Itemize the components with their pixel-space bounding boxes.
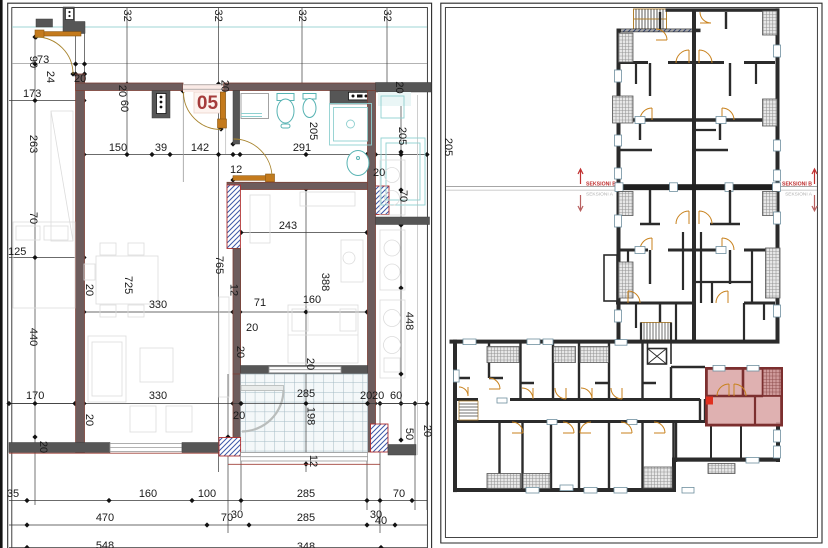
svg-text:20: 20 [372,390,384,402]
svg-text:20: 20 [421,425,433,437]
svg-text:70: 70 [397,190,409,202]
svg-text:20: 20 [219,80,231,92]
svg-text:12: 12 [230,164,242,176]
svg-text:40: 40 [375,515,387,527]
svg-text:20: 20 [116,85,128,97]
svg-text:765: 765 [213,256,225,274]
svg-text:20: 20 [233,410,245,422]
svg-text:30: 30 [231,509,243,521]
svg-text:173: 173 [23,88,41,100]
svg-text:125: 125 [8,246,26,258]
svg-text:348: 348 [297,541,315,548]
svg-text:160: 160 [303,294,321,306]
svg-text:SEKSIONI B: SEKSIONI B [782,181,812,187]
svg-text:205: 205 [396,127,408,145]
svg-text:20: 20 [360,390,372,402]
svg-text:SEKSIONI A: SEKSIONI A [785,192,813,198]
svg-text:285: 285 [297,512,315,524]
svg-text:243: 243 [279,220,297,232]
svg-text:73: 73 [37,54,49,66]
svg-text:330: 330 [149,299,167,311]
svg-text:20: 20 [393,81,405,93]
svg-text:20: 20 [373,167,385,179]
svg-text:205: 205 [442,138,454,156]
svg-text:198: 198 [305,407,317,425]
svg-text:470: 470 [96,512,114,524]
svg-text:12: 12 [228,284,240,296]
svg-text:20: 20 [83,414,95,426]
svg-text:548: 548 [96,540,114,548]
svg-text:SEKSIONI A: SEKSIONI A [586,192,614,198]
svg-text:71: 71 [254,297,266,309]
svg-text:32: 32 [296,10,308,22]
svg-text:35: 35 [7,488,19,500]
svg-text:32: 32 [121,10,133,22]
svg-text:60: 60 [118,100,130,112]
svg-text:285: 285 [297,388,315,400]
svg-text:12: 12 [307,455,319,467]
svg-text:60: 60 [390,390,402,402]
svg-text:388: 388 [319,273,331,291]
svg-text:SEKSIONI B: SEKSIONI B [586,181,616,187]
svg-text:150: 150 [109,142,127,154]
svg-text:725: 725 [122,276,134,294]
svg-text:285: 285 [297,488,315,500]
svg-text:20: 20 [304,358,316,370]
svg-text:448: 448 [403,312,415,330]
svg-text:32: 32 [381,10,393,22]
svg-text:32: 32 [212,10,224,22]
svg-text:142: 142 [191,142,209,154]
svg-text:440: 440 [27,328,39,346]
svg-text:20: 20 [246,322,258,334]
svg-text:20: 20 [83,284,95,296]
svg-text:330: 330 [149,390,167,402]
svg-text:39: 39 [155,142,167,154]
svg-text:20: 20 [74,73,86,85]
svg-text:70: 70 [27,212,39,224]
svg-text:24: 24 [44,71,56,83]
svg-text:170: 170 [26,390,44,402]
svg-text:205: 205 [307,122,319,140]
svg-text:05: 05 [197,93,219,114]
svg-text:20: 20 [234,346,246,358]
svg-text:160: 160 [139,488,157,500]
svg-text:263: 263 [27,135,39,153]
svg-text:20: 20 [37,441,49,453]
svg-text:100: 100 [198,488,216,500]
svg-text:50: 50 [403,428,415,440]
svg-text:291: 291 [293,142,311,154]
svg-text:70: 70 [393,488,405,500]
